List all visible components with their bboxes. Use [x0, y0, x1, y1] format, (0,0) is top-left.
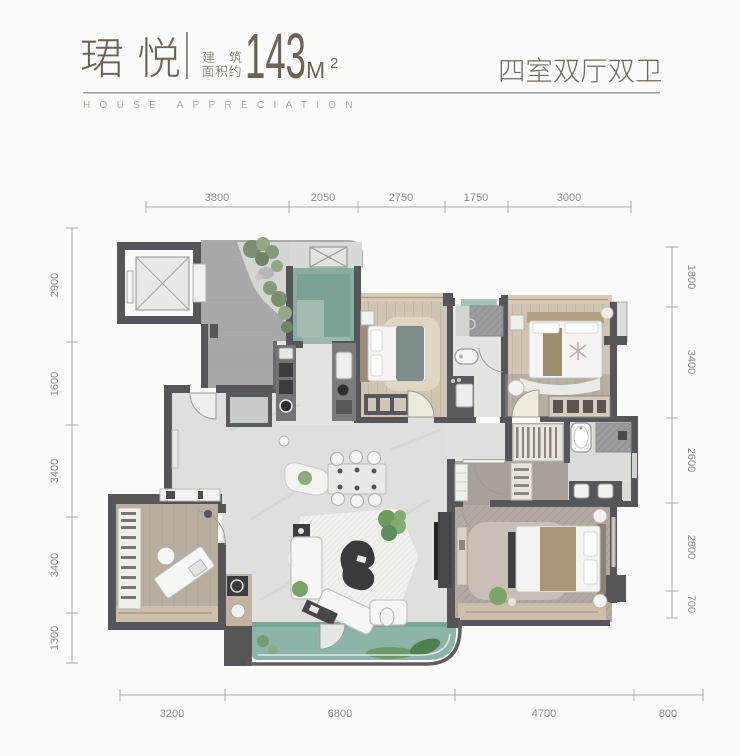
svg-text:2900: 2900	[49, 273, 61, 297]
svg-text:2750: 2750	[389, 192, 413, 204]
svg-text:2050: 2050	[311, 192, 335, 204]
svg-text:3400: 3400	[685, 350, 697, 374]
svg-text:143: 143	[245, 20, 306, 92]
svg-text:3400: 3400	[49, 553, 61, 577]
svg-text:1600: 1600	[49, 372, 61, 396]
svg-text:2800: 2800	[685, 535, 697, 559]
svg-text:3000: 3000	[557, 192, 581, 204]
svg-text:1750: 1750	[464, 192, 488, 204]
svg-text:M: M	[306, 57, 325, 83]
svg-text:800: 800	[659, 708, 677, 720]
svg-text:1300: 1300	[49, 626, 61, 650]
svg-text:2: 2	[330, 55, 338, 72]
svg-text:1800: 1800	[685, 265, 697, 289]
svg-text:3800: 3800	[205, 192, 229, 204]
svg-text:2600: 2600	[685, 448, 697, 472]
svg-text:700: 700	[685, 595, 697, 613]
svg-text:HOUSE APPRECIATION: HOUSE APPRECIATION	[83, 100, 362, 111]
svg-text:6800: 6800	[328, 708, 352, 720]
svg-text:4700: 4700	[532, 708, 556, 720]
svg-text:3400: 3400	[49, 459, 61, 483]
svg-text:3200: 3200	[160, 708, 184, 720]
